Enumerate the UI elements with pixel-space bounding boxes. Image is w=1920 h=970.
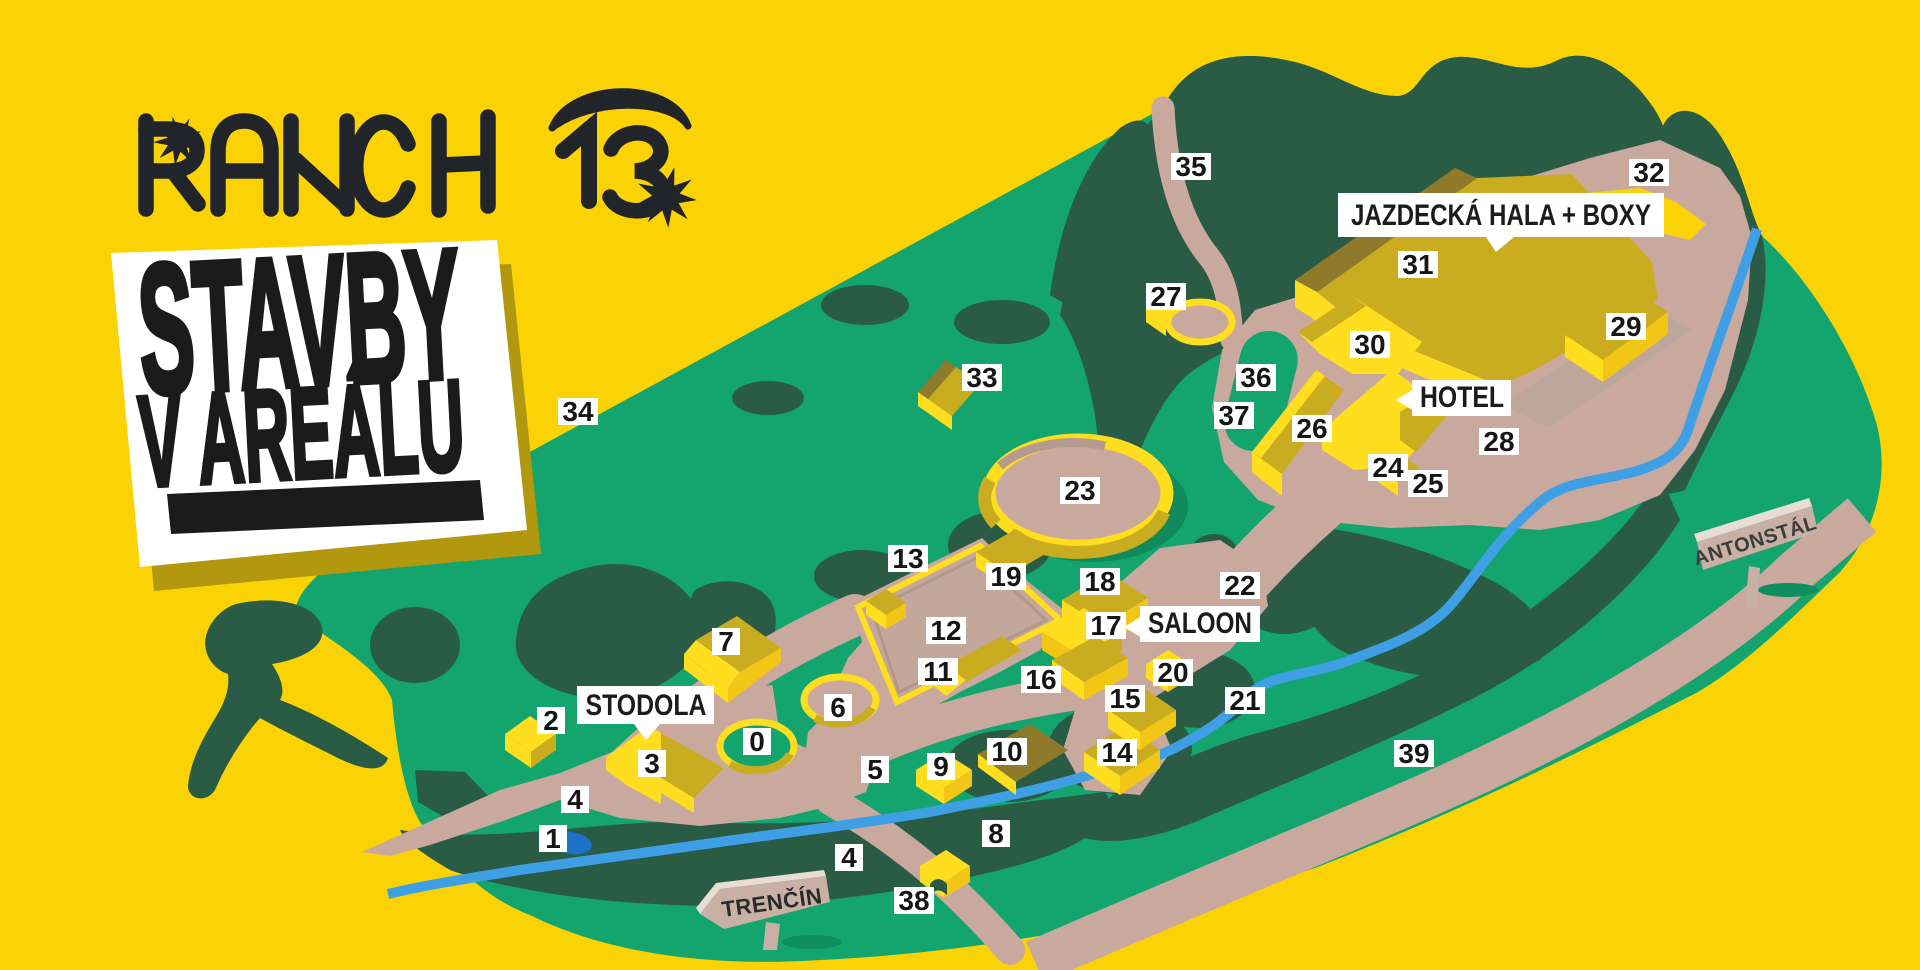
- svg-text:5: 5: [867, 754, 883, 785]
- svg-text:2: 2: [543, 705, 559, 736]
- svg-text:STODOLA: STODOLA: [586, 689, 707, 722]
- svg-text:21: 21: [1229, 685, 1260, 716]
- svg-text:11: 11: [923, 656, 953, 687]
- svg-text:12: 12: [930, 615, 961, 646]
- svg-text:16: 16: [1025, 664, 1056, 695]
- svg-text:23: 23: [1064, 475, 1095, 506]
- svg-text:32: 32: [1633, 157, 1664, 188]
- svg-text:37: 37: [1218, 400, 1249, 431]
- svg-text:35: 35: [1175, 151, 1206, 182]
- svg-text:34: 34: [562, 396, 594, 427]
- svg-text:HOTEL: HOTEL: [1420, 381, 1504, 414]
- svg-text:4: 4: [841, 842, 857, 873]
- svg-text:18: 18: [1084, 566, 1115, 597]
- svg-text:17: 17: [1090, 610, 1121, 641]
- svg-text:9: 9: [933, 751, 949, 782]
- svg-text:27: 27: [1150, 281, 1181, 312]
- svg-text:39: 39: [1398, 738, 1429, 769]
- svg-text:22: 22: [1224, 570, 1255, 601]
- svg-text:0: 0: [749, 726, 765, 757]
- svg-text:8: 8: [988, 818, 1004, 849]
- svg-text:SALOON: SALOON: [1148, 607, 1252, 640]
- svg-text:15: 15: [1109, 683, 1140, 714]
- svg-text:14: 14: [1101, 737, 1133, 768]
- svg-text:25: 25: [1412, 468, 1443, 499]
- svg-text:1: 1: [545, 823, 561, 854]
- svg-text:4: 4: [567, 784, 583, 815]
- svg-text:31: 31: [1402, 249, 1433, 280]
- svg-text:28: 28: [1483, 426, 1514, 457]
- svg-text:7: 7: [718, 626, 734, 657]
- svg-text:20: 20: [1157, 657, 1188, 688]
- svg-text:3: 3: [644, 748, 660, 779]
- svg-text:13: 13: [892, 543, 923, 574]
- svg-text:6: 6: [830, 692, 846, 723]
- svg-text:JAZDECKÁ HALA + BOXY: JAZDECKÁ HALA + BOXY: [1351, 198, 1651, 232]
- svg-text:38: 38: [898, 885, 929, 916]
- svg-text:26: 26: [1296, 413, 1327, 444]
- svg-text:10: 10: [991, 736, 1022, 767]
- svg-text:19: 19: [990, 561, 1021, 592]
- svg-text:29: 29: [1610, 311, 1641, 342]
- svg-text:30: 30: [1354, 329, 1385, 360]
- svg-text:36: 36: [1240, 362, 1271, 393]
- svg-text:24: 24: [1372, 452, 1404, 483]
- svg-text:33: 33: [966, 362, 997, 393]
